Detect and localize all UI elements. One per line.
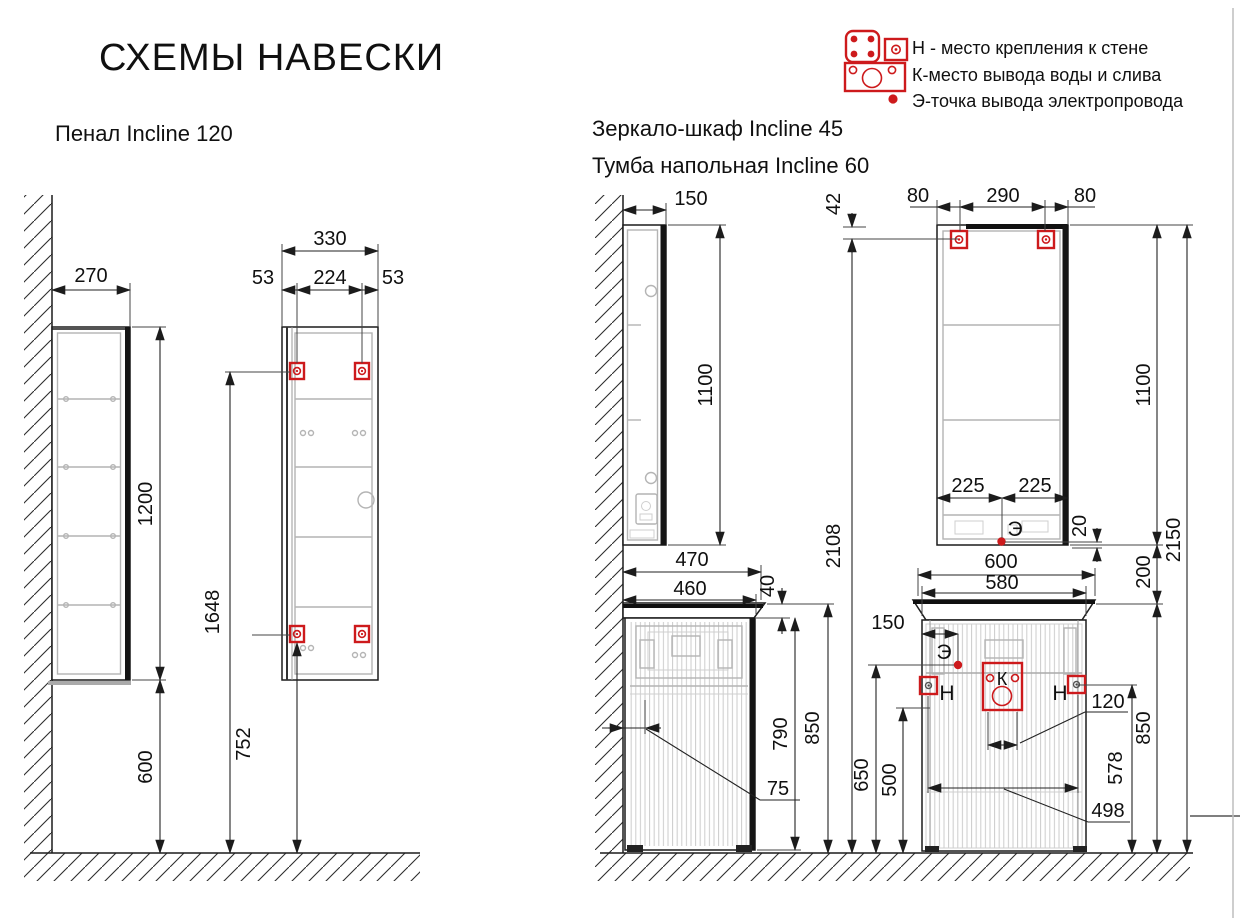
dim-mirror-mount-span: 290 bbox=[986, 185, 1019, 207]
dim-tumba-wall-gap: 75 bbox=[767, 778, 789, 800]
legend-item-drain-label: К-место вывода воды и слива bbox=[912, 65, 1162, 85]
penal-side-view bbox=[48, 327, 131, 683]
mirror-electric-label: Э bbox=[1007, 518, 1022, 541]
electric-point-marker bbox=[954, 661, 962, 669]
dim-mirror-mount-from-top: 42 bbox=[823, 193, 845, 215]
tumba-mount-left-label: Н bbox=[939, 682, 954, 705]
dim-tumba-total-height-front: 850 bbox=[1133, 711, 1155, 744]
technical-drawing: СХЕМЫ НАВЕСКИ Пенал Incline 120 Зеркало-… bbox=[0, 0, 1240, 921]
penal-front-view bbox=[282, 327, 378, 680]
dim-tumba-mirror-gap: 200 bbox=[1133, 555, 1155, 588]
dim-mirror-el-left: 225 bbox=[951, 475, 984, 497]
dim-penal-depth: 270 bbox=[74, 265, 107, 287]
dim-tumba-el-height: 650 bbox=[851, 758, 873, 791]
dim-tumba-body-depth: 460 bbox=[673, 578, 706, 600]
dim-tumba-total-height-side: 850 bbox=[802, 711, 824, 744]
wall-mount-icons bbox=[846, 31, 907, 62]
dim-tumba-counter-width: 600 bbox=[984, 551, 1017, 573]
tumba-title: Тумба напольная Incline 60 bbox=[592, 153, 869, 178]
mounting-scheme-page: СХЕМЫ НАВЕСКИ Пенал Incline 120 Зеркало-… bbox=[0, 0, 1240, 921]
dim-tumba-counter-depth: 470 bbox=[675, 549, 708, 571]
dim-mirror-height-side: 1100 bbox=[695, 363, 717, 406]
dim-mirror-mount-right: 80 bbox=[1074, 185, 1096, 207]
page-edge-artifact bbox=[1190, 8, 1240, 918]
dim-penal-width: 330 bbox=[313, 228, 346, 250]
mirror-front-view: Э bbox=[937, 224, 1068, 546]
dim-mirror-mount-height: 2108 bbox=[823, 524, 845, 569]
dim-penal-height: 1200 bbox=[135, 482, 157, 527]
dim-penal-bottom-mount-height: 752 bbox=[233, 727, 255, 760]
dim-tumba-body-height: 790 bbox=[770, 717, 792, 750]
tumba-mount-right-label: Н bbox=[1052, 682, 1067, 705]
page-title: СХЕМЫ НАВЕСКИ bbox=[99, 37, 444, 79]
water-drain-icon bbox=[845, 63, 905, 91]
dim-mirror-top-height: 2150 bbox=[1163, 518, 1185, 563]
dim-mirror-depth: 150 bbox=[674, 188, 707, 210]
wall-left bbox=[24, 195, 52, 853]
electric-point-marker bbox=[997, 537, 1005, 545]
dim-tumba-drain-width: 120 bbox=[1091, 691, 1124, 713]
dim-tumba-el-offset: 150 bbox=[871, 612, 904, 634]
legend-item-electric-label: Э-точка вывода электропровода bbox=[912, 91, 1184, 111]
dim-tumba-body-width: 580 bbox=[985, 572, 1018, 594]
legend-item-mount-label: Н - место крепления к стене bbox=[912, 38, 1148, 58]
dim-tumba-mount-span: 498 bbox=[1091, 800, 1124, 822]
dim-tumba-drain-height: 578 bbox=[1105, 751, 1127, 784]
penal-title: Пенал Incline 120 bbox=[55, 121, 233, 146]
dim-tumba-counter-thickness: 40 bbox=[757, 575, 779, 597]
electric-point-icon bbox=[888, 94, 897, 103]
floor-right bbox=[595, 853, 1193, 881]
dim-mirror-mount-left: 80 bbox=[907, 185, 929, 207]
floor-left bbox=[24, 853, 420, 881]
mirror-side-view bbox=[623, 225, 666, 545]
wall-right bbox=[595, 195, 623, 853]
dim-penal-top-mount-height: 1648 bbox=[202, 590, 224, 635]
dim-mirror-el-right: 225 bbox=[1018, 475, 1051, 497]
dim-penal-clearance: 600 bbox=[135, 750, 157, 783]
dim-mirror-height-front: 1100 bbox=[1133, 363, 1155, 406]
dim-penal-mount-span: 224 bbox=[313, 267, 346, 289]
dim-mirror-el-offset: 20 bbox=[1069, 515, 1091, 537]
tumba-electric-label: Э bbox=[936, 641, 951, 664]
tumba-drain-label: К bbox=[997, 669, 1008, 689]
dim-penal-mount-right: 53 bbox=[382, 267, 404, 289]
dim-penal-mount-left: 53 bbox=[252, 267, 274, 289]
mirror-title: Зеркало-шкаф Incline 45 bbox=[592, 116, 843, 141]
legend: Н - место крепления к стене К-место выво… bbox=[845, 31, 1184, 111]
dim-tumba-mount-height: 500 bbox=[879, 763, 901, 796]
